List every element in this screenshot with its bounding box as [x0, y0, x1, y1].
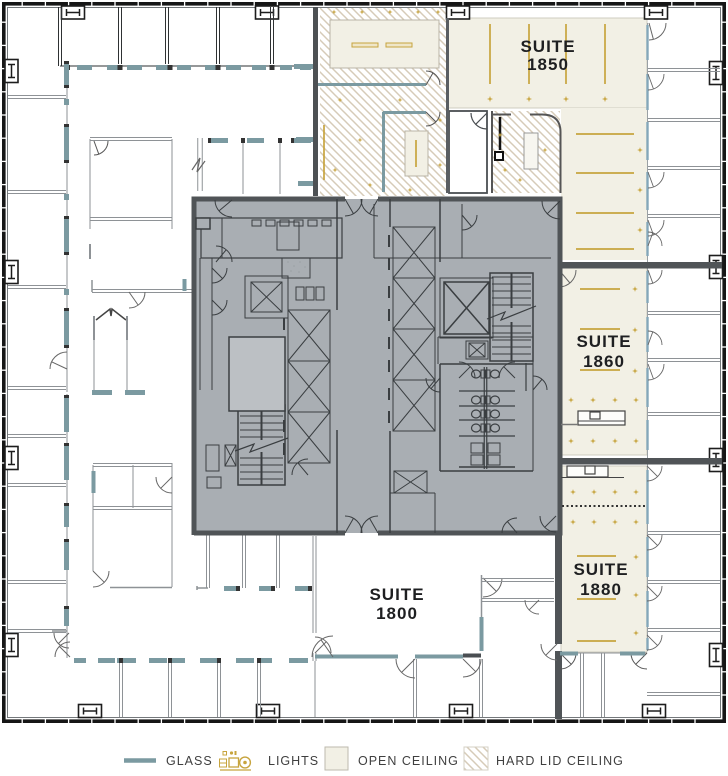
svg-text:1850: 1850	[527, 55, 569, 74]
svg-text:GLASS: GLASS	[166, 754, 213, 768]
svg-text:1860: 1860	[583, 352, 625, 371]
svg-text:LIGHTS: LIGHTS	[268, 754, 319, 768]
svg-text:SUITE: SUITE	[520, 37, 575, 56]
svg-text:SUITE: SUITE	[573, 560, 628, 579]
svg-text:SUITE: SUITE	[576, 332, 631, 351]
svg-text:1800: 1800	[376, 604, 418, 623]
svg-text:HARD LID CEILING: HARD LID CEILING	[496, 754, 624, 768]
svg-text:OPEN CEILING: OPEN CEILING	[358, 754, 459, 768]
svg-text:SUITE: SUITE	[369, 585, 424, 604]
svg-text:1880: 1880	[580, 580, 622, 599]
